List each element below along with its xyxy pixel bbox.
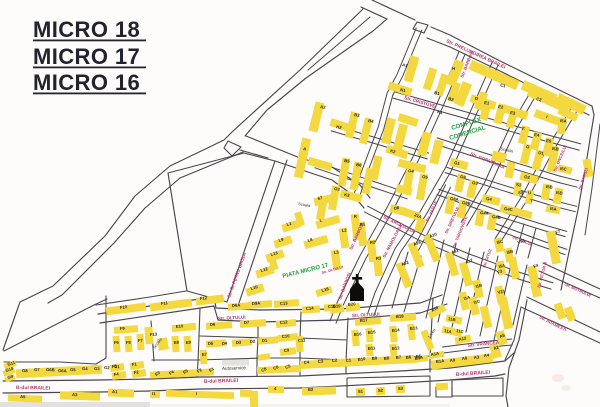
svg-text:B-dul BRAILEI: B-dul BRAILEI [16,385,51,392]
svg-text:D9A: D9A [252,300,261,306]
svg-text:B17: B17 [360,317,369,323]
svg-text:B11: B11 [368,345,377,351]
svg-text:F13: F13 [150,331,158,337]
svg-text:I5C: I5C [560,166,567,172]
svg-text:D: D [475,96,478,101]
svg-text:B1A: B1A [436,358,445,364]
svg-text:A3: A3 [72,392,78,397]
svg-text:I5A: I5A [560,118,567,124]
svg-text:G2: G2 [104,365,110,370]
svg-text:F11: F11 [161,300,169,306]
svg-text:B12: B12 [392,345,401,351]
svg-text:C12: C12 [280,319,289,325]
svg-text:B-dul BRAILEI: B-dul BRAILEI [204,378,239,385]
svg-text:D6A: D6A [232,302,241,308]
svg-text:I: I [196,391,197,396]
svg-text:A5: A5 [20,394,26,399]
svg-text:MICRO 16: MICRO 16 [33,70,140,95]
svg-text:I5B: I5B [552,146,559,152]
svg-text:C14: C14 [306,305,315,311]
svg-text:G8B: G8B [462,200,471,206]
svg-text:B14: B14 [392,327,401,333]
svg-text:G8A: G8A [450,196,459,202]
svg-text:H: H [452,66,455,71]
svg-text:G4A: G4A [480,210,489,216]
svg-text:F10: F10 [120,304,128,310]
svg-text:G8: G8 [22,368,28,373]
svg-text:B13: B13 [410,325,419,331]
svg-text:G1: G1 [114,364,120,369]
svg-text:MICRO 17: MICRO 17 [33,44,140,69]
svg-text:B2: B2 [308,387,314,392]
svg-text:B19: B19 [333,303,342,309]
svg-text:I5A: I5A [550,206,557,212]
svg-text:R: R [354,214,358,219]
svg-text:G3: G3 [94,366,100,371]
svg-text:A1: A1 [112,389,118,394]
svg-text:B20: B20 [348,301,357,307]
svg-text:U: U [528,190,532,195]
svg-text:G6B: G6B [46,367,55,372]
svg-text:G4: G4 [82,366,88,371]
svg-text:C13: C13 [280,300,289,306]
svg-text:Autoservice: Autoservice [222,365,247,371]
svg-text:C11: C11 [298,337,306,343]
svg-text:I5D: I5D [556,190,563,196]
svg-text:F12: F12 [200,295,208,301]
svg-text:B15: B15 [368,329,377,335]
svg-text:G4B: G4B [492,214,501,220]
svg-text:G5: G5 [70,367,76,372]
svg-text:G6A: G6A [58,368,67,373]
svg-text:MICRO 18: MICRO 18 [33,17,140,42]
svg-text:I5B: I5B [546,184,553,190]
svg-text:B18: B18 [396,313,405,319]
svg-text:E10: E10 [176,323,185,329]
svg-text:G7: G7 [34,367,40,372]
svg-text:B16: B16 [354,331,363,337]
svg-text:C10: C10 [282,333,291,339]
